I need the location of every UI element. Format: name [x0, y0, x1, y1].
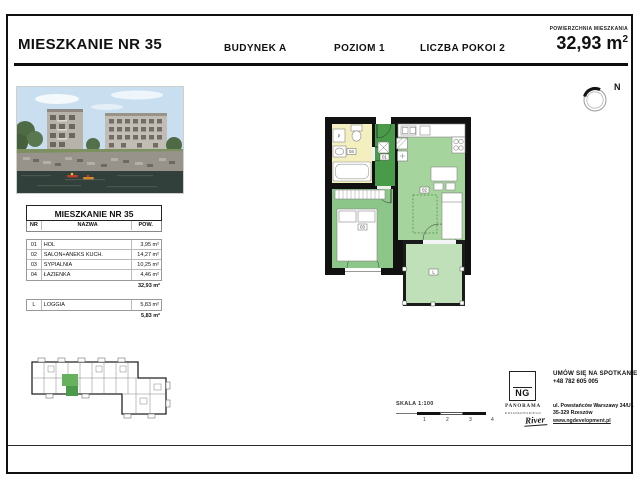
footer-divider: [8, 445, 632, 446]
row-name: HOL: [42, 240, 133, 249]
logo-script-mark: River: [524, 414, 548, 427]
scale-label: SKALA 1:100: [396, 401, 434, 407]
developer-logo: NG: [509, 371, 536, 401]
area-superscript: 2: [622, 34, 628, 45]
row-area: 5,83 m²: [132, 300, 161, 310]
north-letter: N: [614, 82, 621, 92]
page-title: MIESZKANIE NR 35: [18, 36, 162, 53]
row-area: 10,25 m²: [132, 260, 161, 269]
table-row: 04 ŁAZIENKA 4,46 m²: [27, 270, 161, 280]
row-nr: 02: [27, 250, 42, 259]
loggia-row: L LOGGIA 5,83 m²: [26, 299, 162, 311]
contact-headline: UMÓW SIĘ NA SPOTKANIE: [553, 370, 637, 377]
apartment-total-area: 32,93 m²: [26, 281, 162, 292]
contact-website-link[interactable]: www.ngdevelopment.pl: [553, 418, 611, 424]
label-washer: P: [338, 134, 341, 139]
table-row: 02 SALON+ANEKS KUCH. 14,27 m²: [27, 250, 161, 260]
contact-address-line1: ul. Powstańców Warszawy 34/U1: [553, 403, 634, 409]
room-rows: 01 HOL 3,95 m² 02 SALON+ANEKS KUCH. 14,2…: [26, 239, 162, 281]
scale-tick: 2: [446, 417, 449, 423]
scale-tick: 1: [423, 417, 426, 423]
table-row: 01 HOL 3,95 m²: [27, 240, 161, 250]
row-area: 4,46 m²: [132, 270, 161, 280]
row-name: ŁAZIENKA: [42, 270, 133, 280]
col-nr: NR: [27, 221, 42, 230]
row-area: 3,95 m²: [132, 240, 161, 249]
loggia-total-area: 5,83 m²: [26, 311, 162, 322]
row-area: 14,27 m²: [132, 250, 161, 259]
north-compass-icon: [580, 84, 614, 118]
col-nazwa: NAZWA: [42, 221, 133, 230]
row-name: SYPIALNIA: [42, 260, 133, 269]
label-sypialnia: 03: [360, 225, 365, 230]
row-nr: 04: [27, 270, 42, 280]
room-table: MIESZKANIE NR 35 NR NAZWA POW. 01 HOL 3,…: [26, 205, 162, 322]
floor-plan: 01 02 03 04 L P: [325, 117, 473, 309]
logo-brand-name: PANORAMA: [502, 404, 544, 409]
level-label: POZIOM 1: [334, 43, 385, 54]
scale-ticks: 1 2 3 4: [396, 417, 492, 424]
apartment-area: 32,93 m2: [428, 33, 628, 54]
scale-bar: [396, 412, 488, 415]
label-hol: 01: [382, 155, 387, 160]
row-name: SALON+ANEKS KUCH.: [42, 250, 133, 259]
contact-address-line2: 35-329 Rzeszów: [553, 410, 593, 416]
col-pow: POW.: [132, 221, 161, 230]
room-table-title: MIESZKANIE NR 35: [26, 205, 162, 221]
building-key-plan: [24, 350, 172, 424]
header-divider: [14, 63, 628, 66]
contact-phone: +48 782 605 005: [553, 379, 598, 385]
area-caption: POWIERZCHNIA MIESZKANIA: [428, 26, 628, 32]
row-nr: 01: [27, 240, 42, 249]
building-label: BUDYNEK A: [224, 43, 287, 54]
scale-tick: 4: [491, 417, 494, 423]
row-nr: 03: [27, 260, 42, 269]
row-name: LOGGIA: [42, 300, 133, 310]
label-salon: 02: [422, 188, 427, 193]
label-lazienka: 04: [349, 149, 354, 154]
table-row: 03 SYPIALNIA 10,25 m²: [27, 260, 161, 270]
row-nr: L: [27, 300, 42, 310]
building-render-photo: [16, 86, 184, 194]
logo-ng-monogram: NG: [513, 387, 532, 398]
building-render-art: [17, 87, 183, 193]
floor-plan-drawing: 01 02 03 04 L P: [325, 117, 473, 309]
scale-tick: 3: [469, 417, 472, 423]
room-table-header: NR NAZWA POW.: [26, 221, 162, 232]
